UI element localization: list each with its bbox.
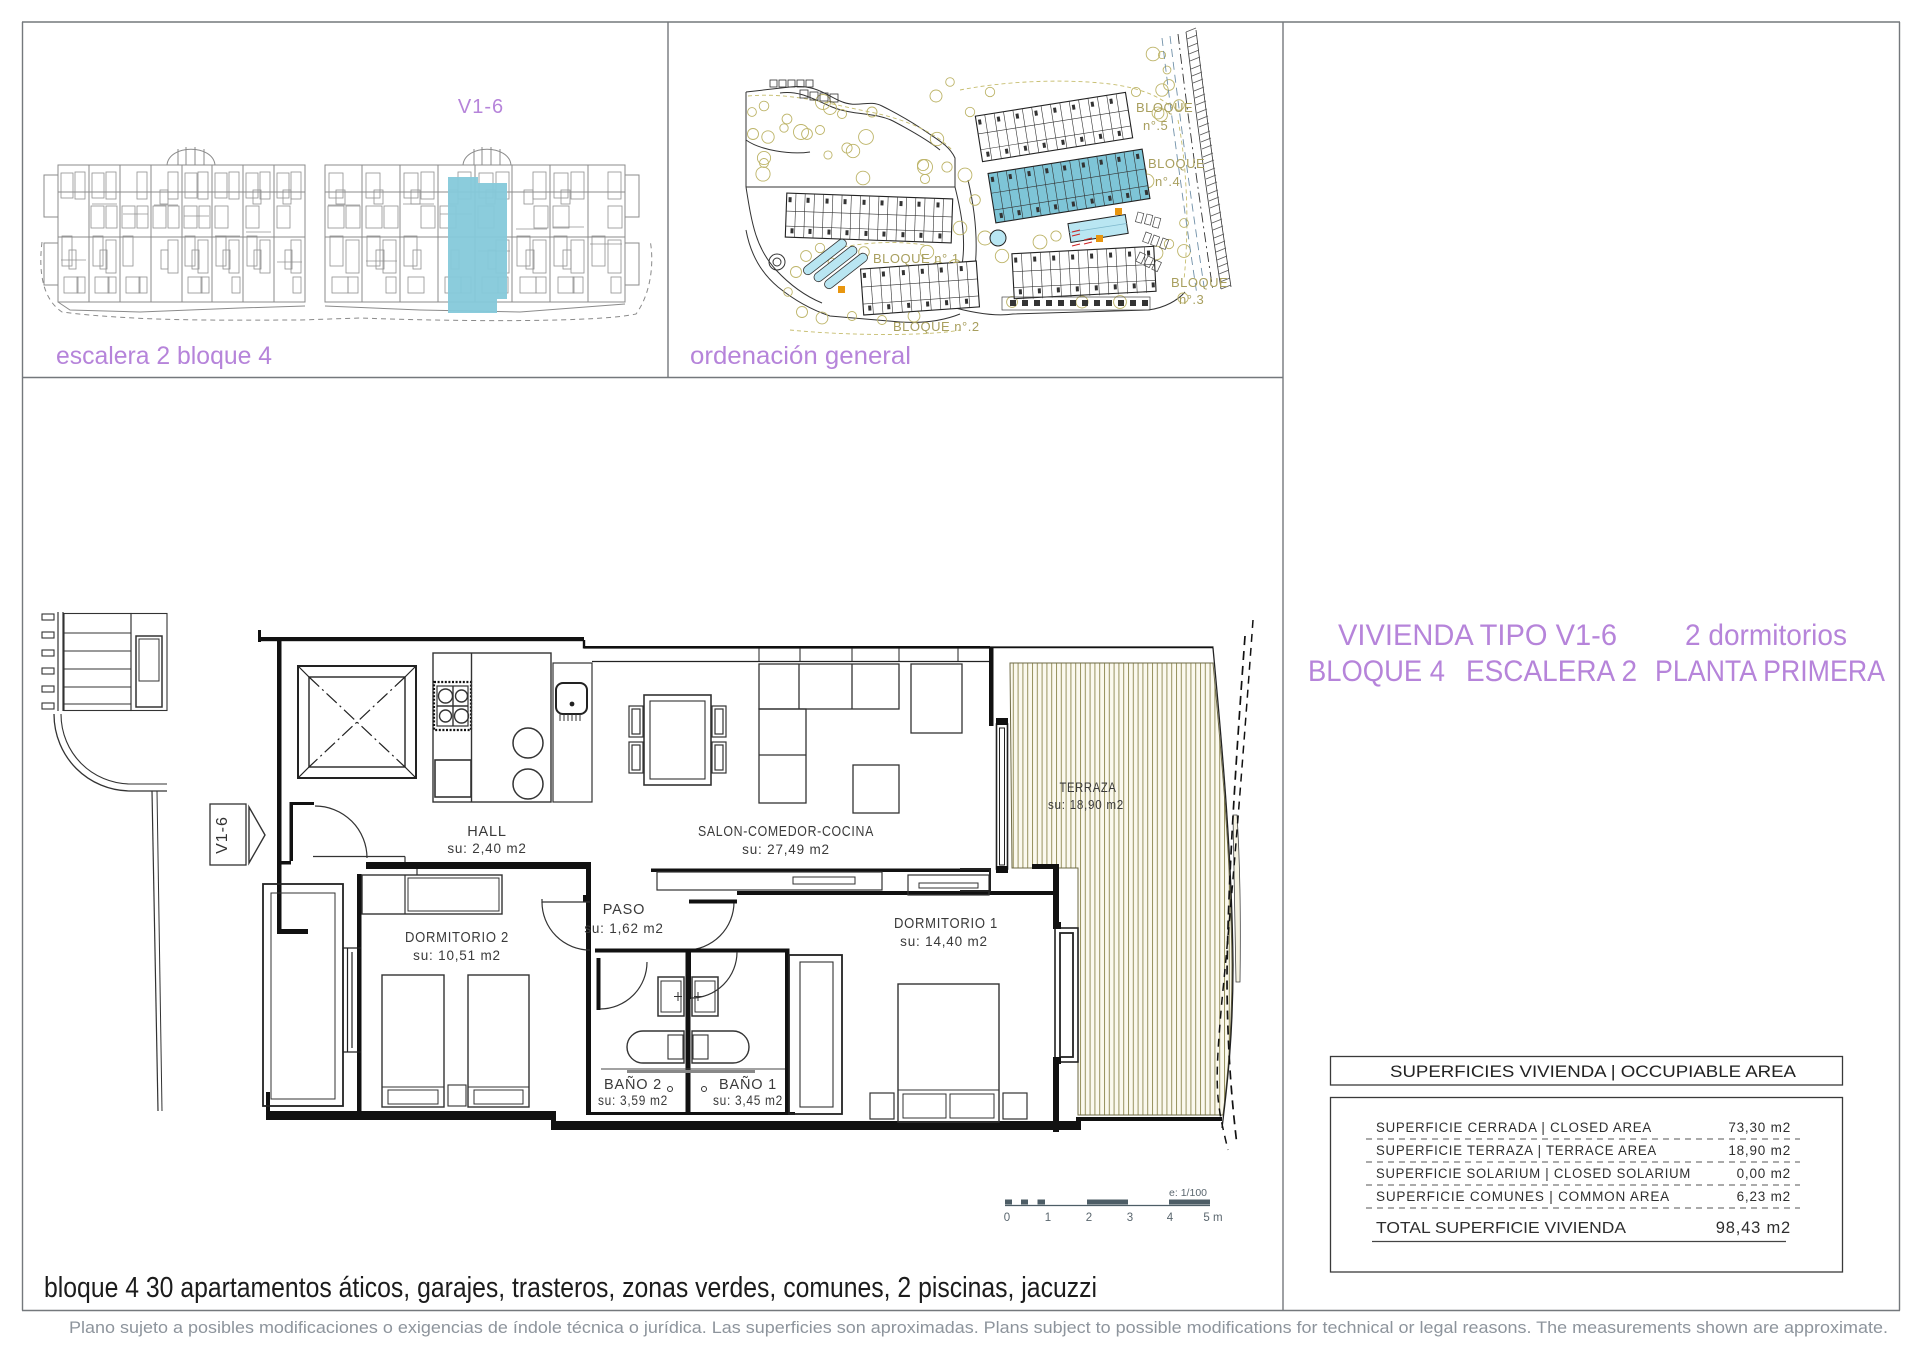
svg-text:TERRAZA: TERRAZA	[1060, 780, 1117, 795]
svg-text:bloque 4 30 apartamentos ático: bloque 4 30 apartamentos áticos, garajes…	[44, 1272, 1097, 1304]
svg-text:BLOQUE n°.1: BLOQUE n°.1	[873, 251, 960, 266]
svg-text:5 m: 5 m	[1203, 1212, 1222, 1224]
svg-text:BAÑO 2: BAÑO 2	[604, 1076, 662, 1093]
svg-text:su: 3,45 m2: su: 3,45 m2	[713, 1093, 783, 1108]
svg-text:SUPERFICIE TERRAZA | TERRA: SUPERFICIE TERRAZA | TERRACE AREA	[1376, 1143, 1657, 1158]
svg-text:SUPERFICIES VIVIENDA | OCCUPIA: SUPERFICIES VIVIENDA | OCCUPIABLE AREA	[1390, 1063, 1796, 1081]
svg-text:VIVIENDA TIPO V1-6: VIVIENDA TIPO V1-6	[1338, 619, 1617, 652]
svg-text:n°.4: n°.4	[1155, 174, 1180, 189]
svg-text:SUPERFICIE COMUNES | COMMON: SUPERFICIE COMUNES | COMMON AREA	[1376, 1189, 1670, 1204]
svg-text:0,00 m2: 0,00 m2	[1737, 1166, 1791, 1181]
svg-text:su: 14,40 m2: su: 14,40 m2	[900, 934, 988, 949]
svg-text:BLOQUE: BLOQUE	[1171, 275, 1228, 290]
svg-text:su: 10,51 m2: su: 10,51 m2	[413, 948, 501, 963]
svg-text:98,43 m2: 98,43 m2	[1716, 1219, 1791, 1237]
svg-text:su: 18,90 m2: su: 18,90 m2	[1048, 797, 1124, 812]
svg-text:SUPERFICIE SOLARIUM | CLOSED: SUPERFICIE SOLARIUM | CLOSED SOLARIUM	[1376, 1166, 1691, 1181]
svg-text:HALL: HALL	[467, 824, 506, 840]
svg-text:SUPERFICIE CERRADA | CLOSED: SUPERFICIE CERRADA | CLOSED AREA	[1376, 1120, 1652, 1135]
svg-text:BLOQUE: BLOQUE	[1148, 156, 1205, 171]
svg-text:4: 4	[1167, 1212, 1174, 1224]
svg-text:Plano sujeto a posibles modifi: Plano sujeto a posibles modificaciones o…	[69, 1318, 1888, 1337]
svg-text:3: 3	[1127, 1212, 1133, 1224]
svg-text:6,23 m2: 6,23 m2	[1737, 1189, 1791, 1204]
svg-text:BAÑO 1: BAÑO 1	[719, 1076, 777, 1093]
svg-text:su: 1,62 m2: su: 1,62 m2	[584, 921, 663, 936]
svg-text:V1-6: V1-6	[214, 816, 231, 854]
svg-text:su: 27,49 m2: su: 27,49 m2	[742, 842, 830, 857]
svg-text:BLOQUE n°.2: BLOQUE n°.2	[893, 319, 980, 334]
svg-text:DORMITORIO 2: DORMITORIO 2	[405, 930, 509, 946]
svg-text:ESCALERA 2: ESCALERA 2	[1466, 655, 1637, 688]
svg-text:V1-6: V1-6	[458, 96, 504, 118]
svg-text:0: 0	[1004, 1212, 1010, 1224]
svg-text:SALON-COMEDOR-COCINA: SALON-COMEDOR-COCINA	[698, 824, 874, 840]
svg-text:su: 3,59 m2: su: 3,59 m2	[598, 1093, 668, 1108]
svg-text:1: 1	[1045, 1212, 1051, 1224]
svg-text:73,30 m2: 73,30 m2	[1728, 1120, 1791, 1135]
svg-text:PLANTA PRIMERA: PLANTA PRIMERA	[1655, 655, 1885, 688]
svg-text:escalera 2 bloque 4: escalera 2 bloque 4	[56, 342, 272, 370]
svg-text:18,90 m2: 18,90 m2	[1728, 1143, 1791, 1158]
svg-text:BLOQUE: BLOQUE	[1136, 100, 1193, 115]
svg-text:2 dormitorios: 2 dormitorios	[1685, 619, 1847, 652]
svg-text:TOTAL SUPERFICIE VIVIENDA: TOTAL SUPERFICIE VIVIENDA	[1376, 1220, 1627, 1237]
svg-text:2: 2	[1086, 1212, 1092, 1224]
svg-text:PASO: PASO	[603, 902, 645, 918]
svg-text:ordenación general: ordenación general	[690, 342, 911, 370]
svg-text:su: 2,40 m2: su: 2,40 m2	[447, 841, 526, 856]
svg-text:DORMITORIO 1: DORMITORIO 1	[894, 916, 998, 932]
svg-text:n°.3: n°.3	[1179, 292, 1204, 307]
svg-text:e: 1/100: e: 1/100	[1169, 1187, 1207, 1199]
svg-text:BLOQUE 4: BLOQUE 4	[1308, 655, 1445, 688]
svg-text:n°.5: n°.5	[1143, 118, 1168, 133]
